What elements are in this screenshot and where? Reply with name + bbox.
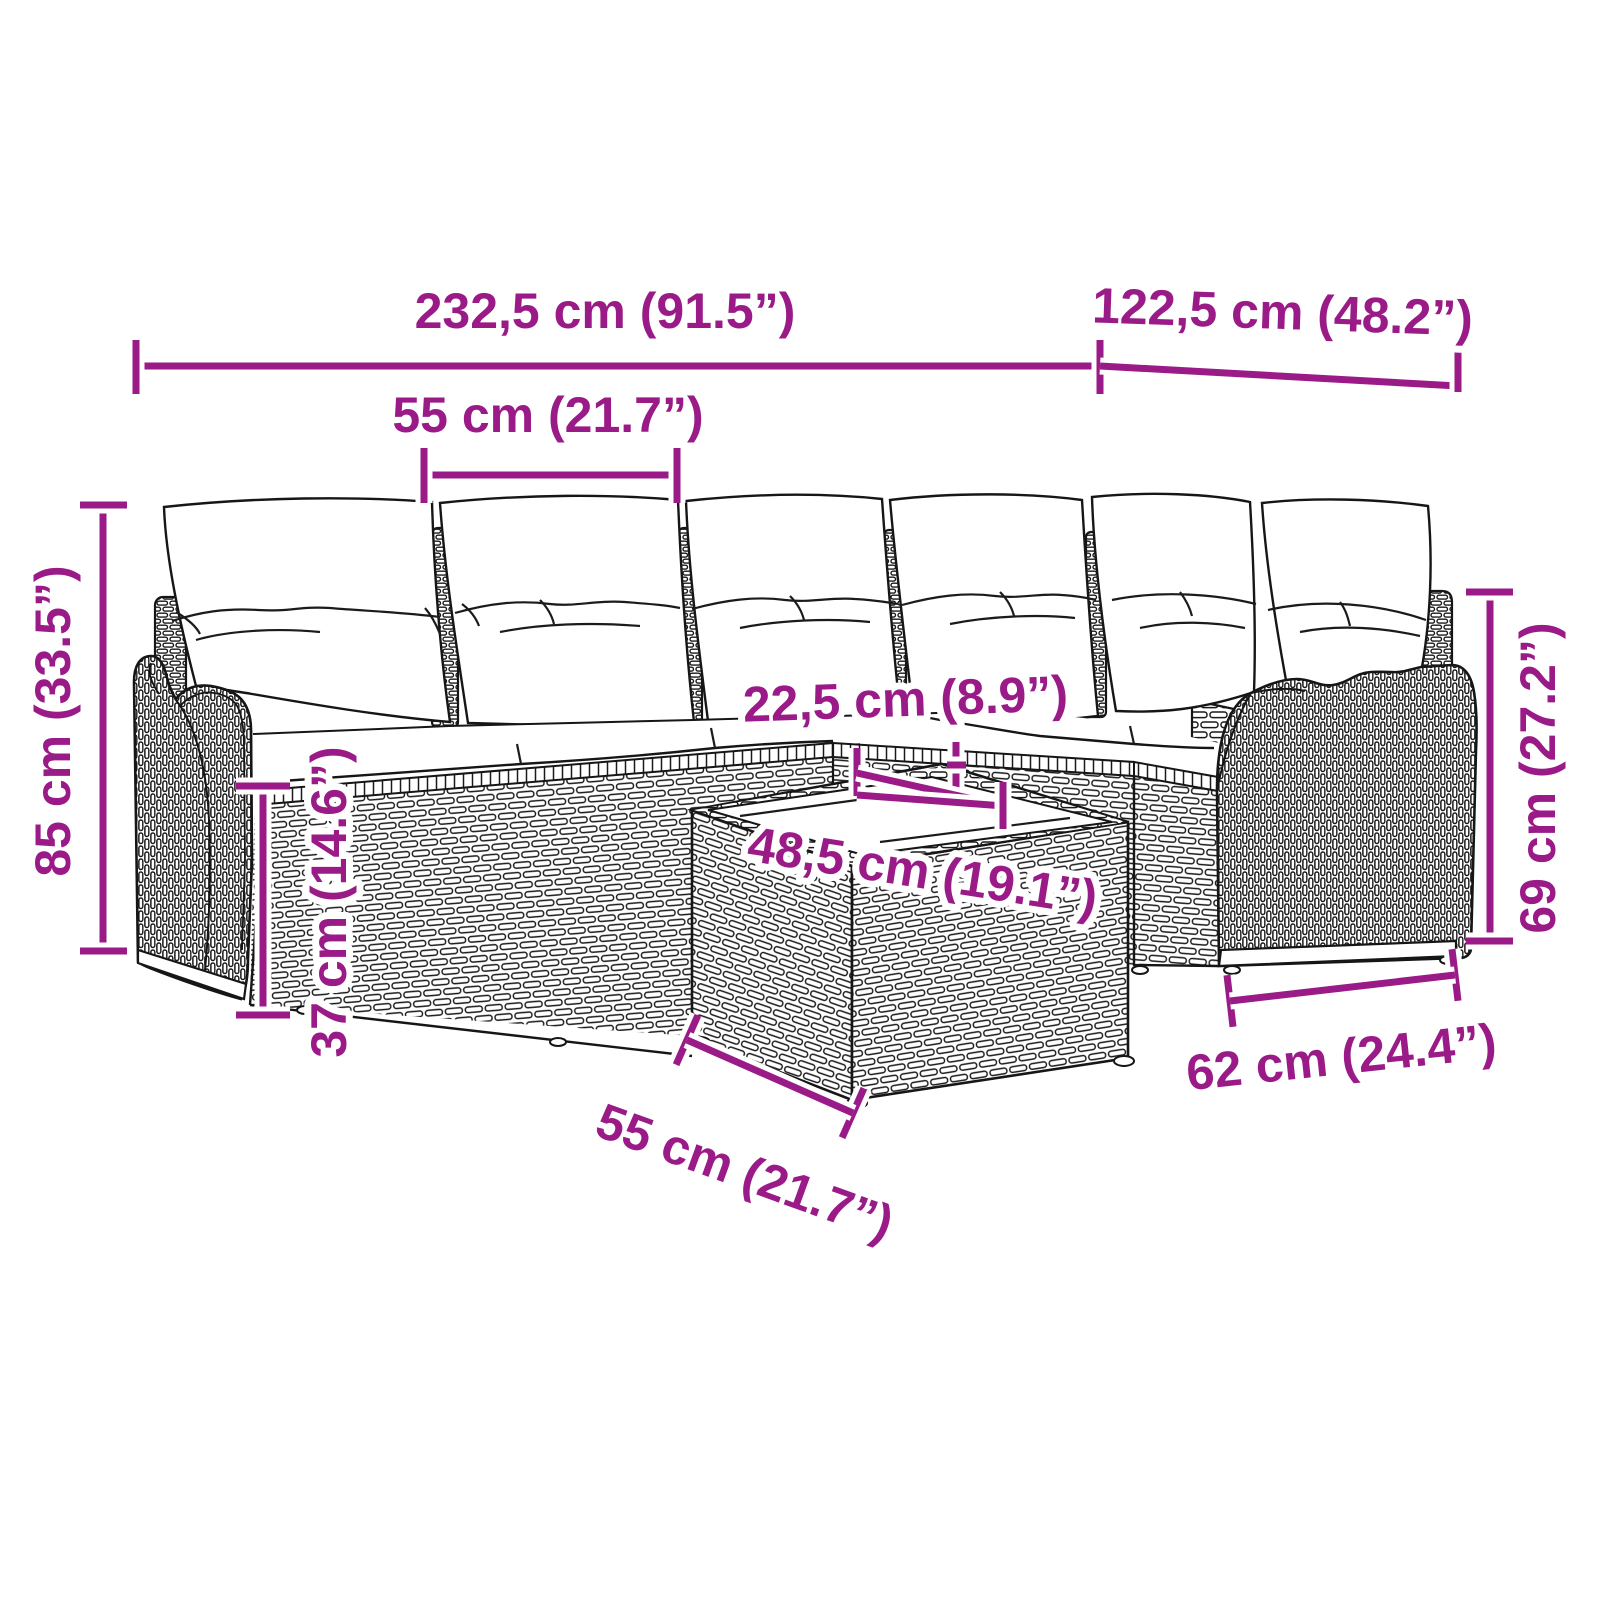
svg-text:69 cm (27.2”): 69 cm (27.2”) xyxy=(1510,622,1566,933)
svg-text:37 cm (14.6”): 37 cm (14.6”) xyxy=(301,746,357,1057)
svg-text:55 cm (21.7”): 55 cm (21.7”) xyxy=(392,387,703,443)
svg-text:22,5 cm (8.9”): 22,5 cm (8.9”) xyxy=(742,665,1069,732)
svg-text:232,5 cm (91.5”): 232,5 cm (91.5”) xyxy=(415,283,796,339)
svg-text:85 cm (33.5”): 85 cm (33.5”) xyxy=(25,565,81,876)
